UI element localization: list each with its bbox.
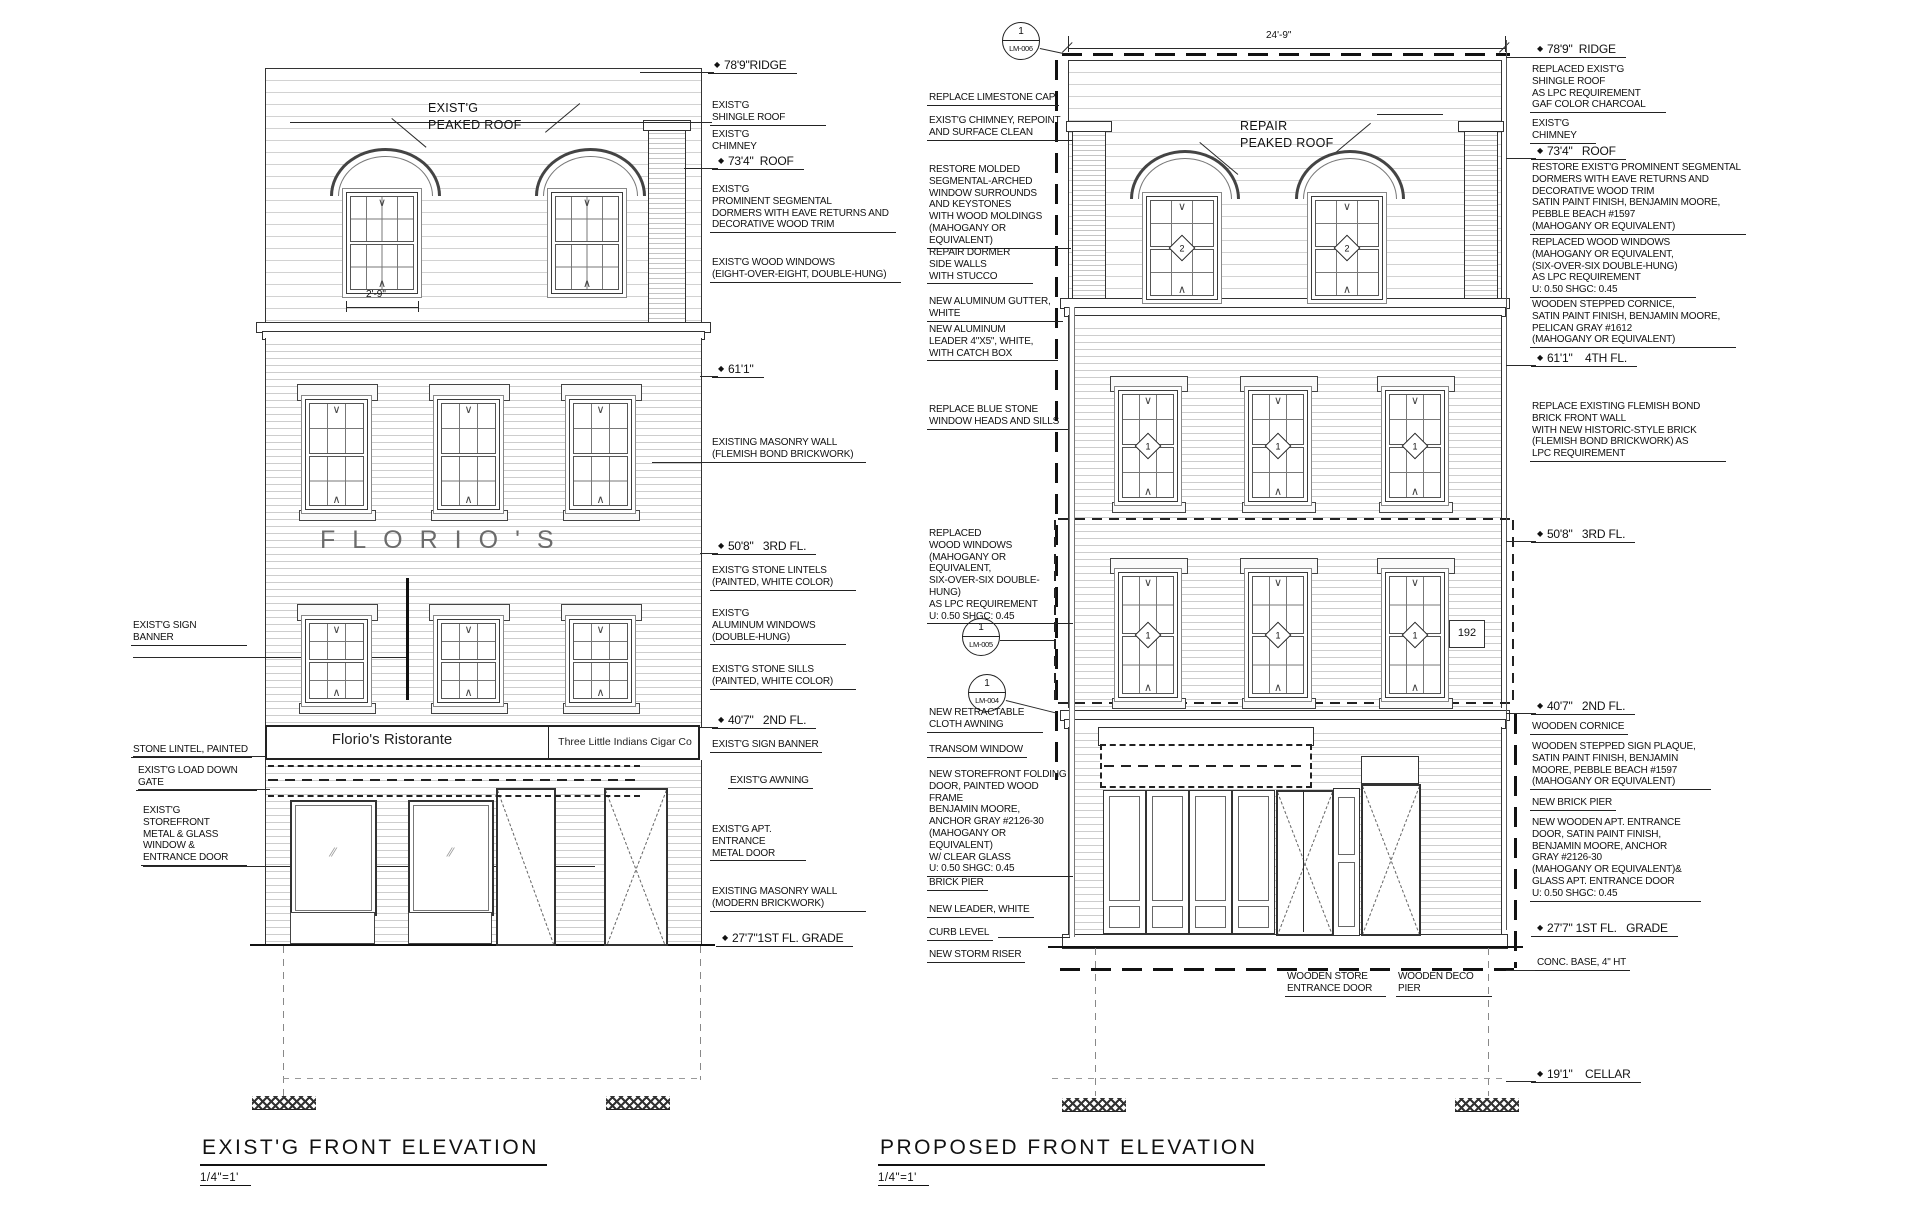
existing-elevation-title: EXIST'G FRONT ELEVATION [200, 1136, 547, 1166]
detail-marker-number: 1 [969, 675, 1005, 693]
dian: 2 [1339, 240, 1356, 257]
label-27-7-1st-fl-grade: 27'7"1ST FL. GRADE [722, 931, 843, 945]
sash-down-arrow-icon: ∨ [596, 624, 604, 635]
label-wooden-deco-pier: WOODEN DECO PIER [1398, 971, 1488, 995]
proposed-elevation-scale: 1/4"=1' [878, 1172, 929, 1186]
vl [1303, 790, 1304, 932]
label-exist-g-awning: EXIST'G AWNING [730, 775, 809, 787]
hd2 [1058, 518, 1510, 520]
label-replaced-wood-windows-mahogany-or-equivale: REPLACED WOOD WINDOWS (MAHOGANY OR EQUIV… [929, 528, 1069, 622]
dim-tick [346, 301, 347, 312]
label-wooden-stepped-cornice-satin-paint-finish-: WOODEN STEPPED CORNICE, SATIN PAINT FINI… [1532, 299, 1732, 346]
label-new-wooden-apt-entrance-door-satin-paint-f: NEW WOODEN APT. ENTRANCE DOOR, SATIN PAI… [1532, 817, 1697, 900]
proposed-grade-line [1048, 946, 1523, 948]
facade-ghost-sign: FLORIO'S [320, 526, 571, 555]
label-78-9-ridge: 78'9"RIDGE [714, 58, 787, 72]
label-exist-g-storefront-metal-glass-window-entr: EXIST'G STOREFRONT METAL & GLASS WINDOW … [143, 805, 243, 864]
dian: 2 [1174, 240, 1191, 257]
sash-down-arrow-icon: ∨ [1274, 395, 1282, 406]
hd2 [268, 779, 640, 781]
apt-entrance-door [1361, 784, 1421, 936]
slab [1379, 502, 1453, 513]
existing-roof-label: EXIST'G PEAKED ROOF [428, 100, 522, 134]
existing-window: ∨∧ [305, 619, 368, 703]
hl [652, 462, 710, 463]
sash-up-arrow-icon: ∧ [583, 278, 591, 289]
label-27-7-1st-fl-grade: 27'7" 1ST FL. GRADE [1537, 921, 1668, 935]
existing-storefront-window [408, 800, 494, 916]
label-19-1-cellar: 19'1" CELLAR [1537, 1067, 1631, 1081]
bulk [290, 912, 375, 944]
label-replace-blue-stone-window-heads-and-sills: REPLACE BLUE STONE WINDOW HEADS AND SILL… [929, 404, 1064, 428]
label-restore-molded-segmental-arched-window-sur: RESTORE MOLDED SEGMENTAL-ARCHED WINDOW S… [929, 164, 1067, 247]
hd2 [1104, 765, 1308, 767]
dgA [497, 790, 556, 946]
sash: ∧ [350, 244, 414, 290]
detail-marker-ref: LM-006 [1003, 41, 1039, 56]
hl [1000, 640, 1054, 641]
proposed-elevation-title: PROPOSED FRONT ELEVATION [878, 1136, 1265, 1166]
sash: ∨ [441, 403, 496, 454]
sl [1040, 48, 1064, 54]
label-exist-g-wood-windows-eight-over-eight-doub: EXIST'G WOOD WINDOWS (EIGHT-OVER-EIGHT, … [712, 257, 897, 281]
sash-up-arrow-icon: ∧ [464, 494, 472, 505]
sash-up-arrow-icon: ∧ [1178, 284, 1186, 295]
vl [1506, 40, 1507, 930]
existing-sign-banner-pole [406, 578, 409, 700]
sash: ∧ [309, 662, 364, 699]
vdg [283, 946, 284, 1096]
label-50-8-3rd-fl: 50'8" 3RD FL. [1537, 527, 1625, 541]
sash-down-arrow-icon: ∨ [1411, 395, 1419, 406]
label-exist-g-prominent-segmental-dormers-with-e: EXIST'G PROMINENT SEGMENTAL DORMERS WITH… [712, 184, 892, 231]
sash: ∨ [573, 403, 628, 454]
sign-restaurant-name: Florio's Ristorante [292, 731, 492, 748]
sash-down-arrow-icon: ∨ [332, 624, 340, 635]
label-new-storm-riser: NEW STORM RISER [929, 949, 1021, 961]
existing-storefront-window [290, 800, 377, 916]
dian: 1 [1140, 627, 1157, 644]
sash-up-arrow-icon: ∧ [1343, 284, 1351, 295]
label-wooden-stepped-sign-plaque-satin-paint-fin: WOODEN STEPPED SIGN PLAQUE, SATIN PAINT … [1532, 741, 1707, 788]
sash: ∨ [555, 196, 619, 242]
slab [563, 703, 640, 714]
sash-down-arrow-icon: ∨ [1178, 201, 1186, 212]
label-stone-lintel-painted: STONE LINTEL, PAINTED [133, 744, 248, 756]
proposed-chimney-cap [1066, 121, 1112, 132]
sash-down-arrow-icon: ∨ [1343, 201, 1351, 212]
slab [1242, 698, 1316, 709]
sash-up-arrow-icon: ∧ [1274, 486, 1282, 497]
dian: 1 [1140, 438, 1157, 455]
proposed-dormer-window: ∨∧2 [1311, 196, 1383, 300]
slab [431, 703, 508, 714]
label-61-1-4th-fl: 61'1" 4TH FL. [1537, 351, 1627, 365]
sash-up-arrow-icon: ∧ [1411, 486, 1419, 497]
proposed-window: ∨∧1 [1385, 390, 1445, 502]
existing-window: ∨∧ [569, 619, 632, 703]
existing-gate-awning-band [268, 765, 640, 797]
slab [299, 703, 376, 714]
sign-cigar-co: Three Little Indians Cigar Co [552, 736, 698, 748]
label-new-aluminum-gutter-white: NEW ALUMINUM GUTTER, WHITE [929, 296, 1059, 320]
folding-door-panel [1189, 790, 1232, 934]
existing-window: ∨∧ [437, 619, 500, 703]
slab [431, 510, 508, 521]
aluminum-leader-pipe [1069, 307, 1075, 937]
address-plaque: 192 [1449, 620, 1485, 648]
label-exist-g-stone-lintels-painted-white-color: EXIST'G STONE LINTELS (PAINTED, WHITE CO… [712, 565, 852, 589]
dian: 1 [1270, 438, 1287, 455]
folding-door-panel [1103, 790, 1146, 934]
slab [1379, 698, 1453, 709]
sash-up-arrow-icon: ∧ [1411, 682, 1419, 693]
proposed-dormer-window: ∨∧2 [1146, 196, 1218, 300]
hl [1068, 48, 1505, 49]
apt-door-transom [1361, 756, 1419, 784]
label-exist-g-sign-banner: EXIST'G SIGN BANNER [133, 620, 243, 644]
hl [1377, 114, 1443, 115]
vd [1514, 714, 1517, 968]
vdg [1095, 948, 1096, 1096]
label-transom-window: TRANSOM WINDOW [929, 744, 1023, 756]
sash: ∧ [573, 662, 628, 699]
wooden-deco-pier [1333, 788, 1360, 936]
label-replaced-exist-g-shingle-roof-as-lpc-requi: REPLACED EXIST'G SHINGLE ROOF AS LPC REQ… [1532, 64, 1662, 111]
sash-down-arrow-icon: ∨ [378, 197, 386, 208]
sash-down-arrow-icon: ∨ [464, 404, 472, 415]
slab [299, 510, 376, 521]
dian: 1 [1270, 627, 1287, 644]
sash-down-arrow-icon: ∨ [1411, 577, 1419, 588]
label-exist-g-chimney: EXIST'G CHIMNEY [1532, 118, 1592, 142]
label-brick-pier: BRICK PIER [929, 877, 984, 889]
label-exist-g-load-down-gate: EXIST'G LOAD DOWN GATE [138, 765, 253, 789]
label-new-aluminum-leader-4-x5-white-with-catch-: NEW ALUMINUM LEADER 4"X5", WHITE, WITH C… [929, 324, 1054, 359]
label-40-7-2nd-fl: 40'7" 2ND FL. [1537, 699, 1625, 713]
proposed-window: ∨∧1 [1118, 390, 1178, 502]
hl [1506, 970, 1536, 971]
sash-down-arrow-icon: ∨ [1144, 577, 1152, 588]
label-new-leader-white: NEW LEADER, WHITE [929, 904, 1030, 916]
label-restore-exist-g-prominent-segmental-dormer: RESTORE EXIST'G PROMINENT SEGMENTAL DORM… [1532, 162, 1742, 233]
slab [563, 510, 640, 521]
sash-up-arrow-icon: ∧ [596, 687, 604, 698]
label-78-9-ridge: 78'9" RIDGE [1537, 42, 1616, 56]
label-new-brick-pier: NEW BRICK PIER [1532, 797, 1612, 809]
sash-down-arrow-icon: ∨ [596, 404, 604, 415]
bulk [408, 912, 492, 944]
proposed-roof-label: REPAIR PEAKED ROOF [1240, 118, 1334, 152]
sash: ∨ [350, 196, 414, 242]
sash-up-arrow-icon: ∧ [1144, 682, 1152, 693]
label-exist-g-aluminum-windows-double-hung: EXIST'G ALUMINUM WINDOWS (DOUBLE-HUNG) [712, 608, 842, 643]
dim-tick [418, 301, 419, 312]
sash-up-arrow-icon: ∧ [596, 494, 604, 505]
slab [1112, 698, 1186, 709]
vl [548, 725, 549, 760]
label-new-storefront-folding-door-painted-wood-f: NEW STOREFRONT FOLDING DOOR, PAINTED WOO… [929, 769, 1069, 875]
label-exist-g-sign-banner: EXIST'G SIGN BANNER [712, 739, 818, 751]
label-40-7-2nd-fl: 40'7" 2ND FL. [718, 713, 806, 727]
label-replaced-wood-windows-mahogany-or-equivale: REPLACED WOOD WINDOWS (MAHOGANY OR EQUIV… [1532, 237, 1692, 296]
label-existing-masonry-wall-modern-brickwork: EXISTING MASONRY WALL (MODERN BRICKWORK) [712, 886, 862, 910]
sash-up-arrow-icon: ∧ [378, 278, 386, 289]
label-61-1: 61'1" [718, 362, 754, 376]
sash-up-arrow-icon: ∧ [332, 494, 340, 505]
vd2 [1512, 520, 1514, 702]
label-wooden-cornice: WOODEN CORNICE [1532, 721, 1624, 733]
label-repair-dormer-side-walls-with-stucco: REPAIR DORMER SIDE WALLS WITH STUCCO [929, 247, 1029, 282]
existing-window: ∨∧ [437, 399, 500, 510]
existing-window: ∨∧ [305, 399, 368, 510]
sash: ∧ [573, 456, 628, 507]
dian: 1 [1407, 627, 1424, 644]
detail-marker-ref: LM-004 [969, 693, 1005, 708]
vdg [700, 946, 701, 1080]
sash: ∨ [573, 623, 628, 660]
label-exist-g-apt-entrance-metal-door: EXIST'G APT. ENTRANCE METAL DOOR [712, 824, 802, 859]
building-width-dim: 24'-9" [1266, 30, 1291, 41]
sash: ∨ [309, 403, 364, 454]
vdg [1488, 948, 1489, 1096]
label-conc-base-4-ht: CONC. BASE, 4" HT [1537, 957, 1626, 969]
existing-chimney [648, 128, 686, 324]
label-exist-g-chimney-repoint-and-surface-clean: EXIST'G CHIMNEY, REPOINT AND SURFACE CLE… [929, 115, 1069, 139]
label-wooden-store-entrance-door: WOODEN STORE ENTRANCE DOOR [1287, 971, 1382, 995]
ground-hatch [606, 1096, 670, 1110]
sash-up-arrow-icon: ∧ [464, 687, 472, 698]
detail-marker-ref: LM-005 [963, 637, 999, 652]
existing-dormer-window: ∨∧ [346, 192, 418, 294]
cellar-line [1052, 1078, 1506, 1079]
sash-down-arrow-icon: ∨ [464, 624, 472, 635]
existing-elevation-scale: 1/4"=1' [200, 1172, 251, 1186]
sash-down-arrow-icon: ∨ [1274, 577, 1282, 588]
folding-door-panel [1232, 790, 1275, 934]
proposed-window: ∨∧1 [1248, 572, 1308, 698]
sash-up-arrow-icon: ∧ [332, 687, 340, 698]
label-exist-g-chimney: EXIST'G CHIMNEY [712, 129, 757, 153]
sash-up-arrow-icon: ∧ [1274, 682, 1282, 693]
label-exist-g-shingle-roof: EXIST'G SHINGLE ROOF [712, 100, 822, 124]
detail-marker: 1 LM-006 [1002, 22, 1040, 60]
sash: ∨ [309, 623, 364, 660]
proposed-chimney-cap [1458, 121, 1504, 132]
existing-store-door [496, 788, 556, 946]
sash: ∧ [555, 244, 619, 290]
proposed-window: ∨∧1 [1248, 390, 1308, 502]
slab [1112, 502, 1186, 513]
elevation-drawing-sheet: ∨∧ ∨∧ 2'-9" ∨∧ ∨∧ ∨∧ FLORIO'S ∨∧ ∨∧ ∨∧ F… [0, 0, 1920, 1207]
dim-line [346, 307, 418, 308]
folding-door-panel [1146, 790, 1189, 934]
existing-window: ∨∧ [569, 399, 632, 510]
proposed-chimney [1464, 130, 1498, 304]
proposed-window: ∨∧1 [1385, 572, 1445, 698]
label-exist-g-stone-sills-painted-white-color: EXIST'G STONE SILLS (PAINTED, WHITE COLO… [712, 664, 852, 688]
proposed-chimney [1072, 130, 1106, 304]
label-existing-masonry-wall-flemish-bond-brickwo: EXISTING MASONRY WALL (FLEMISH BOND BRIC… [712, 437, 862, 461]
label-replace-existing-flemish-bond-brick-front-: REPLACE EXISTING FLEMISH BOND BRICK FRON… [1532, 401, 1722, 460]
hd [1062, 53, 1510, 56]
slab [1242, 502, 1316, 513]
label-curb-level: CURB LEVEL [929, 927, 989, 939]
sash-up-arrow-icon: ∧ [1144, 486, 1152, 497]
ground-hatch [252, 1096, 316, 1110]
ground-hatch [1455, 1098, 1519, 1112]
sash: ∨ [441, 623, 496, 660]
ground-hatch [1062, 1098, 1126, 1112]
dormer-width-dim: 2'-9" [366, 289, 386, 300]
hdg [283, 1078, 700, 1079]
label-50-8-3rd-fl: 50'8" 3RD FL. [718, 539, 806, 553]
existing-dormer-window: ∨∧ [551, 192, 623, 294]
sash: ∧ [441, 662, 496, 699]
detail-marker-number: 1 [1003, 23, 1039, 41]
hl [998, 937, 1070, 938]
label-73-4-roof: 73'4" ROOF [718, 154, 794, 168]
label-73-4-roof: 73'4" ROOF [1537, 144, 1616, 158]
label-new-retractable-cloth-awning: NEW RETRACTABLE CLOTH AWNING [929, 707, 1039, 731]
existing-apt-door [604, 788, 668, 946]
sash: ∧ [309, 456, 364, 507]
sash-down-arrow-icon: ∨ [583, 197, 591, 208]
proposed-window: ∨∧1 [1118, 572, 1178, 698]
sash: ∧ [441, 456, 496, 507]
hl [640, 72, 714, 73]
sash-down-arrow-icon: ∨ [332, 404, 340, 415]
dian: 1 [1407, 438, 1424, 455]
sash-down-arrow-icon: ∨ [1144, 395, 1152, 406]
store-entrance-door [1276, 790, 1334, 936]
label-replace-limestone-cap: REPLACE LIMESTONE CAP [929, 92, 1055, 104]
